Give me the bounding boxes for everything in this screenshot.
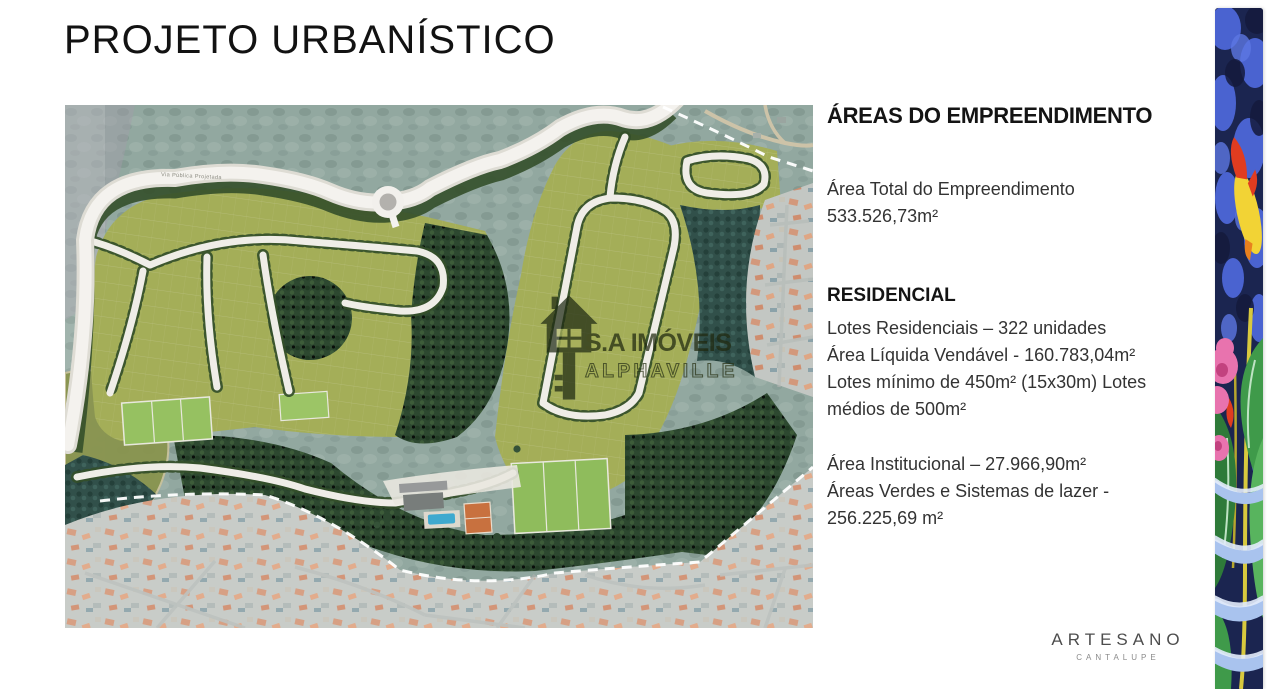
- brand-logo: ARTESANO CANTALUPE: [1040, 630, 1196, 662]
- residencial-line: Lotes Residenciais – 322 unidades: [827, 315, 1159, 342]
- total-area-label: Área Total do Empreendimento: [827, 176, 1159, 203]
- slide: { "title": "PROJETO URBANÍSTICO", "panel…: [0, 0, 1280, 689]
- brand-tagline: CANTALUPE: [1040, 653, 1196, 662]
- institucional-line: Área Institucional – 27.966,90m²: [827, 451, 1159, 478]
- page-title: PROJETO URBANÍSTICO: [64, 18, 556, 63]
- residencial-line: Lotes mínimo de 450m² (15x30m) Lotes méd…: [827, 369, 1159, 423]
- watermark-text: S.A IMÓVEIS: [585, 327, 731, 357]
- total-area-block: Área Total do Empreendimento 533.526,73m…: [827, 176, 1159, 230]
- panel-heading: ÁREAS DO EMPREENDIMENTO: [827, 103, 1159, 129]
- tropical-flowers-illustration: [1215, 8, 1263, 689]
- masterplan-map: Via Pública Projetada S.A IMÓVEIS ALPHAV…: [65, 105, 813, 628]
- other-areas-block: Área Institucional – 27.966,90m² Áreas V…: [827, 451, 1159, 532]
- masterplan-aerial-illustration: Via Pública Projetada S.A IMÓVEIS ALPHAV…: [65, 105, 813, 628]
- areas-panel: ÁREAS DO EMPREENDIMENTO Área Total do Em…: [827, 103, 1159, 532]
- brand-name: ARTESANO: [1040, 630, 1196, 650]
- floral-strip-art: [1215, 8, 1263, 689]
- residencial-heading: RESIDENCIAL: [827, 285, 1159, 307]
- verdes-line: Áreas Verdes e Sistemas de lazer - 256.2…: [827, 478, 1159, 532]
- total-area-value: 533.526,73m²: [827, 203, 1159, 230]
- watermark-subtext: ALPHAVILLE: [585, 361, 738, 382]
- residencial-line: Área Líquida Vendável - 160.783,04m²: [827, 342, 1159, 369]
- residencial-block: Lotes Residenciais – 322 unidades Área L…: [827, 315, 1159, 423]
